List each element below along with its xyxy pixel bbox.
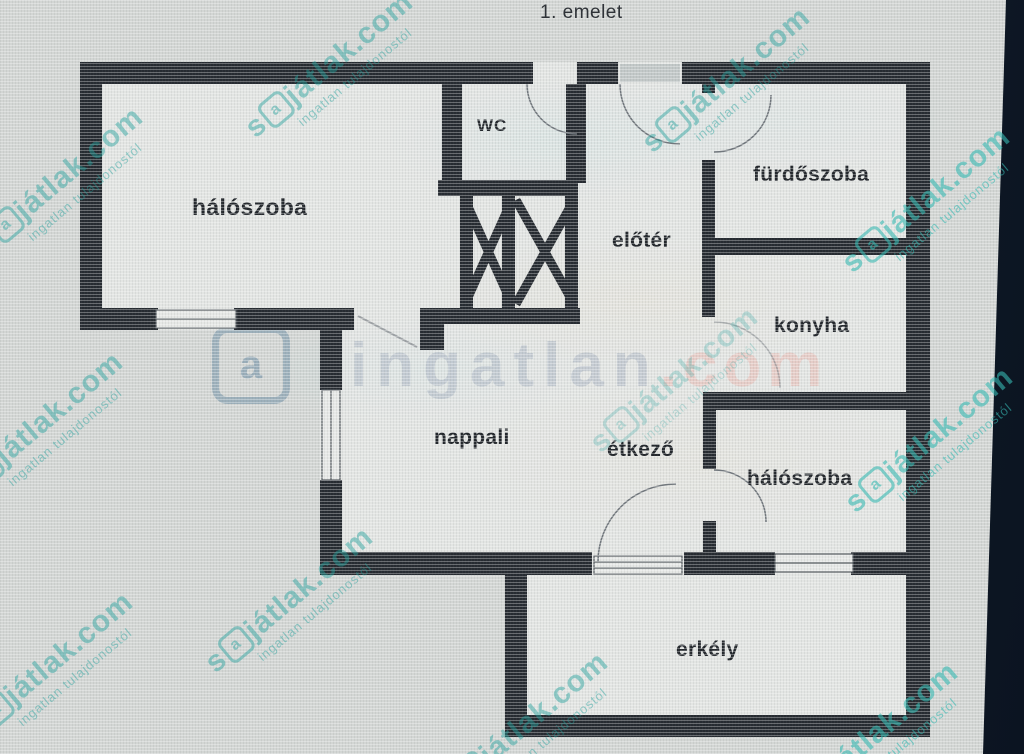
- room-label-hall: előtér: [612, 229, 671, 253]
- entrance-door-leaf: [620, 64, 680, 82]
- room-label-bedroom2: hálószoba: [747, 467, 852, 491]
- room-label-kitchen: konyha: [774, 314, 849, 338]
- floor-plan-drawing: [0, 0, 1024, 754]
- floor-plan-photo: a ingatlan .com: [0, 0, 1024, 754]
- page-title: 1. emelet: [540, 2, 623, 24]
- room-label-living-room: nappali: [434, 426, 510, 450]
- room-label-dining: étkező: [607, 438, 674, 462]
- room-label-bedroom1: hálószoba: [192, 194, 307, 221]
- room-label-bathroom: fürdőszoba: [753, 163, 869, 187]
- room-label-balcony: erkély: [676, 638, 739, 662]
- room-label-wc: WC: [477, 116, 507, 136]
